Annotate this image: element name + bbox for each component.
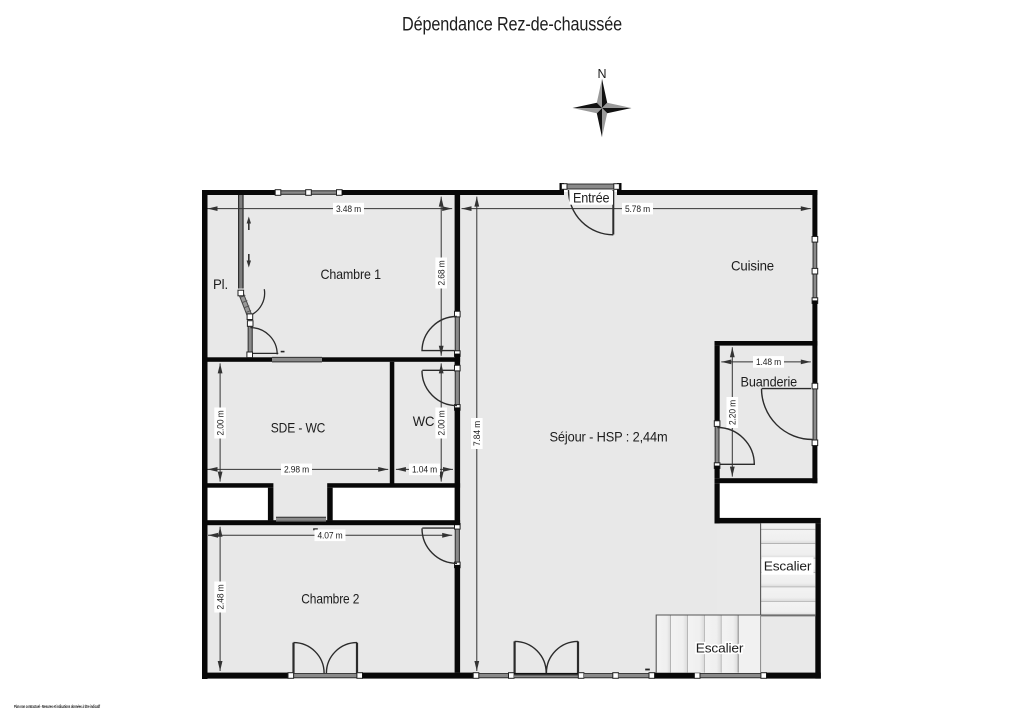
svg-text:4.07 m: 4.07 m — [318, 530, 343, 541]
svg-text:Entrée: Entrée — [573, 191, 610, 206]
svg-text:Pl.: Pl. — [213, 276, 228, 292]
svg-text:WC: WC — [413, 413, 435, 429]
svg-text:2.20 m: 2.20 m — [727, 400, 738, 425]
svg-text:SDE - WC: SDE - WC — [271, 419, 326, 435]
svg-text:1.48 m: 1.48 m — [756, 356, 781, 367]
svg-text:Escalier: Escalier — [764, 559, 812, 574]
svg-text:7.84 m: 7.84 m — [471, 421, 482, 446]
svg-text:Plan non contractuel - Mesures: Plan non contractuel - Mesures et indica… — [14, 704, 101, 709]
svg-text:Escalier: Escalier — [696, 641, 744, 656]
svg-text:Chambre 1: Chambre 1 — [320, 266, 381, 282]
svg-text:3.48 m: 3.48 m — [336, 203, 361, 214]
svg-text:2.48 m: 2.48 m — [214, 584, 225, 609]
svg-text:1.04 m: 1.04 m — [412, 464, 437, 475]
svg-text:2.68 m: 2.68 m — [436, 260, 447, 285]
svg-text:Dépendance Rez-de-chaussée: Dépendance Rez-de-chaussée — [402, 15, 622, 36]
svg-text:N: N — [598, 67, 607, 81]
svg-text:2.00 m: 2.00 m — [214, 410, 225, 435]
svg-text:2.98 m: 2.98 m — [284, 464, 309, 475]
svg-text:Buanderie: Buanderie — [741, 373, 798, 389]
svg-text:Cuisine: Cuisine — [731, 257, 774, 273]
svg-text:Chambre 2: Chambre 2 — [301, 590, 359, 606]
svg-text:5.78 m: 5.78 m — [625, 203, 650, 214]
svg-text:2.00 m: 2.00 m — [436, 410, 447, 435]
svg-text:Séjour - HSP : 2,44m: Séjour - HSP : 2,44m — [550, 428, 668, 444]
